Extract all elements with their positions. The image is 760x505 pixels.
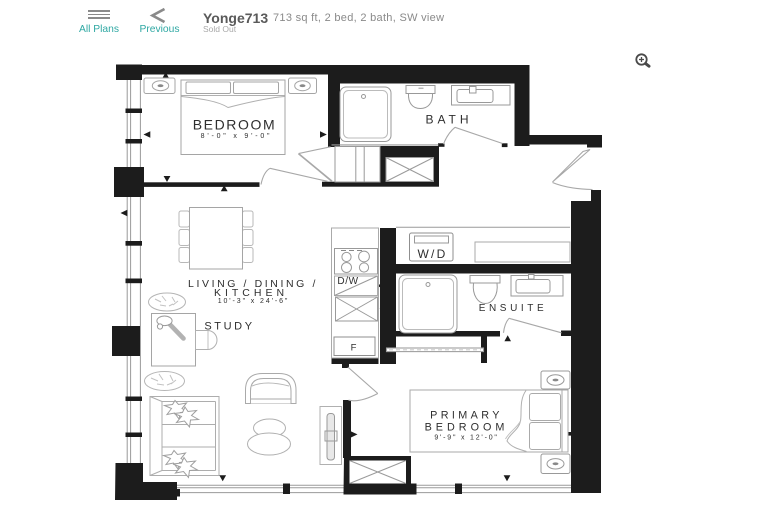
svg-text:ENSUITE: ENSUITE: [479, 303, 548, 314]
svg-text:W/D: W/D: [418, 247, 448, 261]
svg-text:PRIMARY: PRIMARY: [430, 410, 503, 422]
svg-text:BATH: BATH: [425, 113, 472, 127]
svg-text:BEDROOM: BEDROOM: [425, 422, 509, 434]
svg-text:8'-0" x 9'-0": 8'-0" x 9'-0": [201, 133, 273, 140]
svg-text:F: F: [351, 343, 357, 354]
svg-text:D/W: D/W: [337, 276, 358, 287]
svg-text:9'-9" x 12'-0": 9'-9" x 12'-0": [434, 435, 498, 442]
svg-text:STUDY: STUDY: [204, 321, 254, 333]
svg-text:10'-3" x 24'-6": 10'-3" x 24'-6": [218, 298, 290, 305]
svg-text:BEDROOM: BEDROOM: [193, 117, 277, 133]
